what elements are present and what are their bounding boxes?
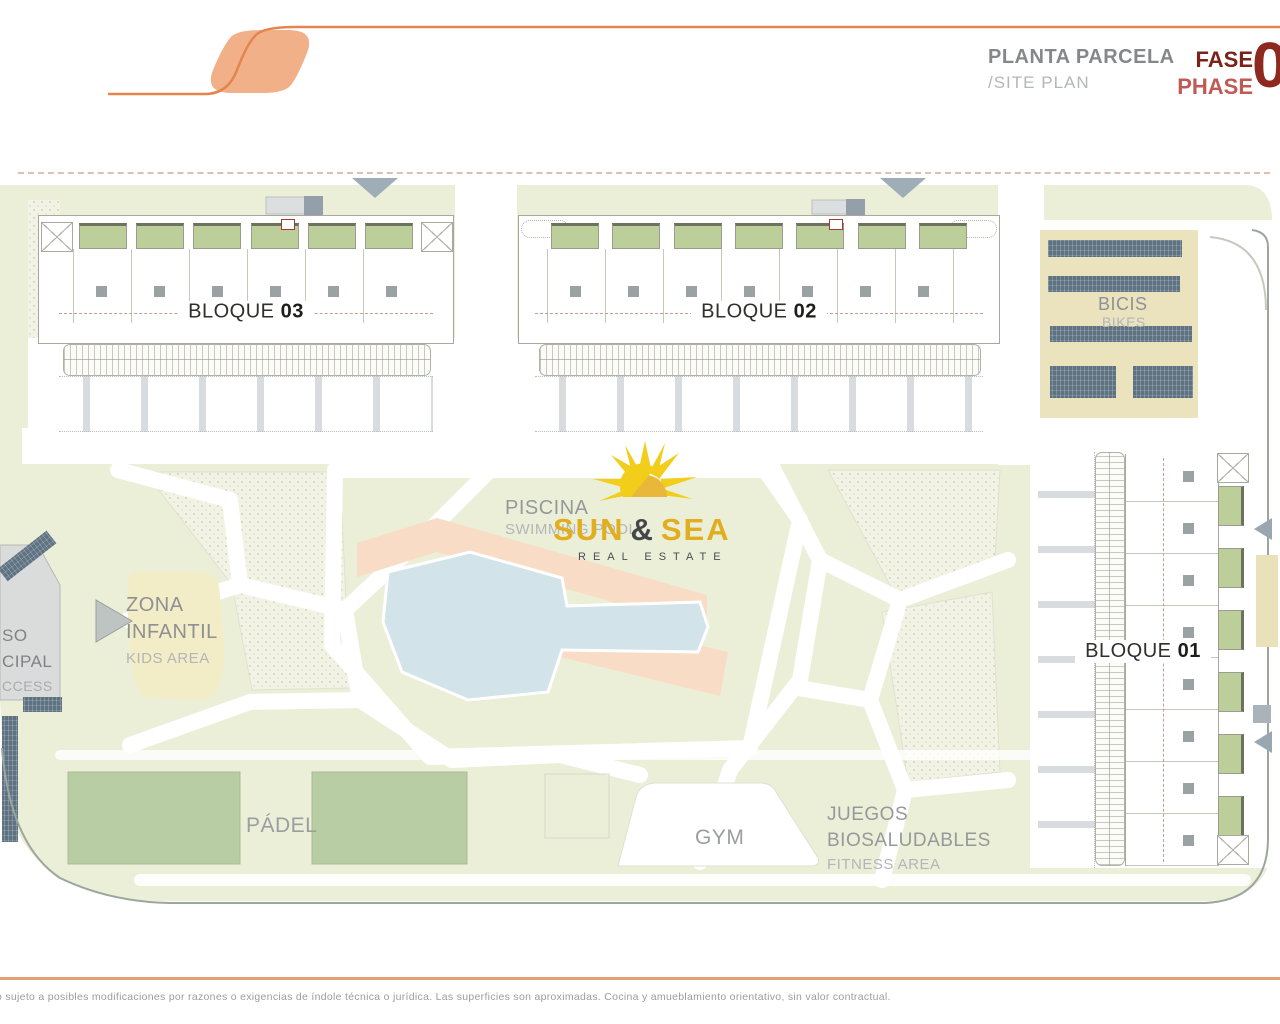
- solar-canopy: [23, 697, 62, 712]
- access-label-2: CIPAL: [2, 652, 52, 672]
- zona-infantil-label-1: ZONA: [126, 594, 184, 617]
- building-axis: BLOQUE 02: [535, 313, 983, 337]
- terrace: [919, 223, 967, 249]
- building-bloque-02: BLOQUE 02: [518, 215, 1000, 344]
- solar-canopy: [2, 716, 18, 842]
- logo-sun: SUN: [553, 512, 624, 547]
- footer-rule: [0, 977, 1280, 980]
- roof-structure: [846, 199, 865, 216]
- juegos-label-2: BIOSALUDABLES: [827, 830, 991, 852]
- fitness-area-label: FITNESS AREA: [827, 856, 941, 873]
- bike-rack: [1133, 366, 1193, 398]
- terrace: [612, 223, 660, 249]
- stairwell-icon: [41, 222, 73, 252]
- terrace: [1218, 796, 1244, 836]
- terrace: [674, 223, 722, 249]
- property-boundary-dashed: [18, 172, 1270, 174]
- stairwell-icon: [421, 222, 453, 252]
- terrace-row: [551, 223, 967, 249]
- swoosh-shape: [211, 30, 309, 93]
- terrace: [79, 223, 127, 249]
- bike-rack: [1048, 240, 1182, 257]
- terrace: [735, 223, 783, 249]
- column-row: [547, 286, 971, 297]
- terrace-row: [79, 223, 413, 249]
- terrace: [193, 223, 241, 249]
- utility-marker: [829, 219, 843, 230]
- phase-label: FASE PHASE: [1100, 46, 1253, 100]
- terrace: [1218, 548, 1244, 588]
- stairwell-icon: [1217, 835, 1249, 865]
- kids-area-label: KIDS AREA: [126, 650, 210, 667]
- page-title-en: /SITE PLAN: [988, 73, 1090, 93]
- site-plan-page: PLANTA PARCELA /SITE PLAN FASE PHASE 0 B…: [0, 0, 1280, 1024]
- side-structure: [1253, 705, 1271, 723]
- padel-label: PÁDEL: [246, 814, 317, 838]
- terrace: [858, 223, 906, 249]
- entrance-marker: [880, 178, 926, 198]
- padel-court: [312, 772, 467, 864]
- block-label: BLOQUE 03: [178, 301, 314, 324]
- terrace: [136, 223, 184, 249]
- building-axis: BLOQUE 03: [59, 313, 433, 337]
- utility-marker: [281, 219, 295, 230]
- terrace: [1218, 486, 1244, 526]
- gym-label: GYM: [695, 826, 744, 850]
- logo-ampersand: &: [624, 512, 660, 547]
- building-bloque-03: BLOQUE 03: [38, 215, 454, 344]
- terrace: [1218, 672, 1244, 712]
- garden-forecourt: [535, 376, 983, 432]
- entrance-marker: [352, 178, 398, 198]
- access-label-1: SO: [2, 626, 28, 646]
- legal-disclaimer: o sujeto a posibles modificaciones por r…: [0, 991, 891, 1003]
- pergola-strip: [63, 344, 431, 376]
- zona-infantil-label-2: INFANTIL: [126, 621, 218, 644]
- bike-rack: [1050, 366, 1116, 398]
- roof-structure: [812, 200, 848, 214]
- column-row: [73, 286, 419, 297]
- logo-sea: SEA: [661, 512, 731, 547]
- roof-structure: [266, 197, 306, 214]
- terrace: [551, 223, 599, 249]
- terrace: [308, 223, 356, 249]
- phase-number: 0: [1252, 28, 1280, 102]
- block-label: BLOQUE 01: [1053, 640, 1233, 663]
- padel-court: [68, 772, 240, 864]
- access-label-3: CCESS: [2, 678, 53, 694]
- phase-label-es: FASE: [1100, 46, 1253, 73]
- sun-sea-logo-text: SUN&SEA: [553, 512, 731, 548]
- stairwell-icon: [1217, 453, 1249, 483]
- bicis-label: BICIS: [1098, 294, 1148, 315]
- bikes-label: BIKES: [1102, 314, 1146, 330]
- roof-structure: [304, 196, 323, 215]
- phase-label-en: PHASE: [1100, 73, 1253, 100]
- terrace: [1218, 734, 1244, 774]
- bike-rack: [1048, 276, 1180, 292]
- juegos-label-1: JUEGOS: [827, 804, 908, 826]
- sun-sea-logo-tagline: REAL ESTATE: [578, 551, 728, 563]
- block-label: BLOQUE 02: [691, 301, 827, 324]
- pergola-strip: [539, 344, 981, 376]
- terrace: [365, 223, 413, 249]
- garden-forecourt: [59, 376, 433, 432]
- building-bloque-01: BLOQUE 01: [1095, 450, 1247, 870]
- side-strip: [1256, 555, 1278, 647]
